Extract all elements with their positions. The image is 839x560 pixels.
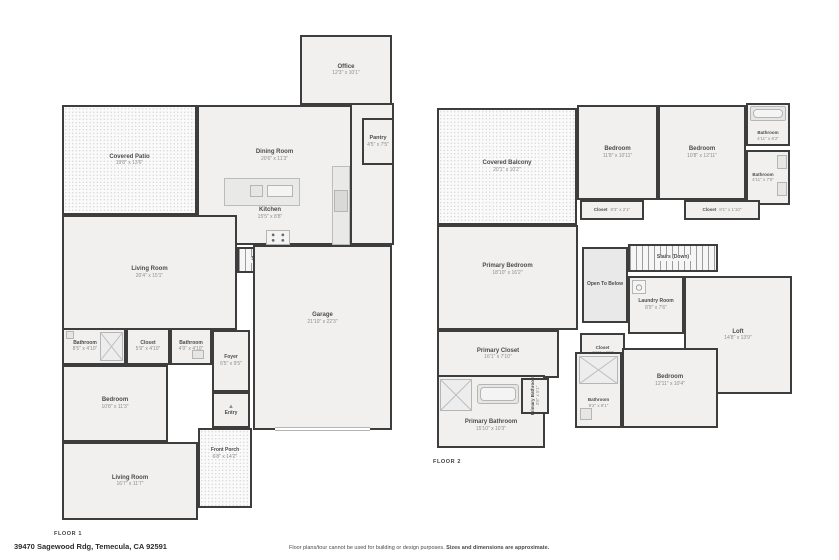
room-bedroom-3: Bedroom10'8" x 12'11" xyxy=(658,105,746,200)
floor-plan-page: Office12'3" x 10'1" Pantry4'5" x 7'5" Co… xyxy=(0,0,839,560)
room-front-porch: Front Porch6'8" x 14'2" xyxy=(198,428,252,508)
room-primary-bedroom: Primary Bedroom18'10" x 16'2" xyxy=(437,225,578,330)
room-primary-closet: Primary Closet16'1" x 7'10" xyxy=(437,330,559,378)
room-covered-patio: Covered Patio19'8" x 13'6" xyxy=(62,105,197,215)
floor2-label: FLOOR 2 xyxy=(433,459,461,465)
room-closet-3: Closet8'1" x 1'10" xyxy=(684,200,760,220)
room-bedroom-4: Bedroom12'11" x 10'4" xyxy=(622,348,718,428)
room-bedroom-2: Bedroom11'8" x 10'11" xyxy=(577,105,658,200)
sink-icon xyxy=(777,155,787,169)
shower-icon xyxy=(100,332,123,361)
stairs-down: Stairs (Down) xyxy=(628,244,718,272)
washer-icon xyxy=(632,280,646,294)
shower-icon xyxy=(440,379,472,411)
sink-icon xyxy=(777,182,787,196)
room-living-room-2: Living Room16'7" x 11'7" xyxy=(62,442,198,520)
room-garage: Garage21'10" x 22'3" xyxy=(253,245,392,430)
room-office: Office12'3" x 10'1" xyxy=(300,35,392,105)
disclaimer-text: Floor plans/tour cannot be used for buil… xyxy=(289,545,549,551)
open-to-below: Open To Below xyxy=(582,247,628,323)
refrigerator-icon xyxy=(334,190,348,212)
floor1-label: FLOOR 1 xyxy=(54,531,82,537)
room-entry: ▲Entry xyxy=(212,392,250,428)
room-closet-2: Closet8'3" x 2'1" xyxy=(580,200,644,220)
garage-door-opening xyxy=(275,427,370,431)
room-foyer: Foyer6'5" x 9'5" xyxy=(212,330,250,392)
bathtub-icon xyxy=(477,384,519,404)
toilet-icon xyxy=(580,408,592,420)
room-covered-balcony: Covered Balcony20'1" x 10'2" xyxy=(437,108,577,225)
room-bedroom-1: Bedroom10'8" x 11'3" xyxy=(62,365,168,442)
sink-icon xyxy=(192,350,204,359)
bathtub-icon xyxy=(750,106,786,121)
room-bathroom-2: Bathroom4'9" x 4'10" xyxy=(170,328,212,365)
room-primary-bathroom-wc: Primary Bathroom3'6" x 5'1" xyxy=(521,378,549,414)
stove-icon xyxy=(266,230,290,245)
room-kitchen-label: Kitchen15'5" x 8'8" xyxy=(238,207,302,220)
room-pantry: Pantry4'5" x 7'5" xyxy=(362,118,394,165)
entry-arrow-icon: ▲ xyxy=(228,404,234,410)
property-address: 39470 Sagewood Rdg, Temecula, CA 92591 xyxy=(14,542,167,551)
toilet-icon xyxy=(66,331,74,339)
room-living-room: Living Room20'4" x 15'1" xyxy=(62,215,237,330)
island-sink-icon xyxy=(250,185,263,197)
room-closet-1: Closet5'9" x 4'10" xyxy=(126,328,170,365)
shower-icon xyxy=(579,356,618,384)
island-cooktop-icon xyxy=(267,185,293,197)
